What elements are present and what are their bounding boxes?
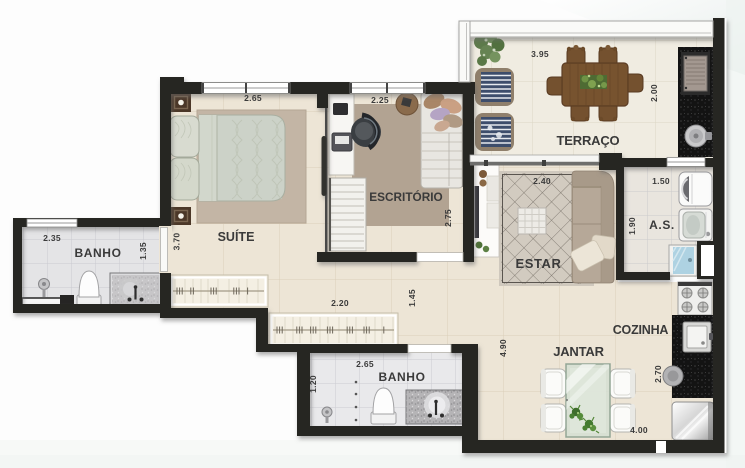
svg-text:2.70: 2.70	[653, 365, 663, 383]
svg-text:3.95: 3.95	[531, 49, 549, 59]
svg-text:1.45: 1.45	[407, 289, 417, 307]
svg-text:TERRAÇO: TERRAÇO	[557, 133, 620, 148]
svg-text:2.00: 2.00	[649, 84, 659, 102]
svg-text:2.35: 2.35	[43, 233, 61, 243]
svg-text:1.35: 1.35	[138, 242, 148, 260]
svg-text:1.50: 1.50	[652, 176, 670, 186]
svg-text:BANHO: BANHO	[75, 246, 122, 260]
svg-text:2.20: 2.20	[331, 298, 349, 308]
svg-text:2.25: 2.25	[371, 95, 389, 105]
svg-text:ESTAR: ESTAR	[515, 256, 561, 271]
svg-text:3.70: 3.70	[172, 233, 182, 251]
svg-text:2.65: 2.65	[244, 93, 262, 103]
svg-text:SUÍTE: SUÍTE	[218, 229, 255, 244]
svg-text:4.90: 4.90	[498, 339, 508, 357]
svg-text:4.00: 4.00	[630, 425, 648, 435]
svg-text:1.90: 1.90	[627, 217, 637, 235]
svg-text:A.S.: A.S.	[649, 218, 675, 232]
svg-text:2.75: 2.75	[443, 209, 453, 227]
svg-text:2.40: 2.40	[533, 176, 551, 186]
svg-text:2.65: 2.65	[356, 359, 374, 369]
svg-text:BANHO: BANHO	[379, 370, 426, 384]
svg-text:1.20: 1.20	[308, 375, 318, 393]
svg-text:COZINHA: COZINHA	[613, 323, 669, 337]
svg-text:JANTAR: JANTAR	[553, 344, 604, 359]
svg-text:ESCRITÓRIO: ESCRITÓRIO	[369, 190, 442, 204]
